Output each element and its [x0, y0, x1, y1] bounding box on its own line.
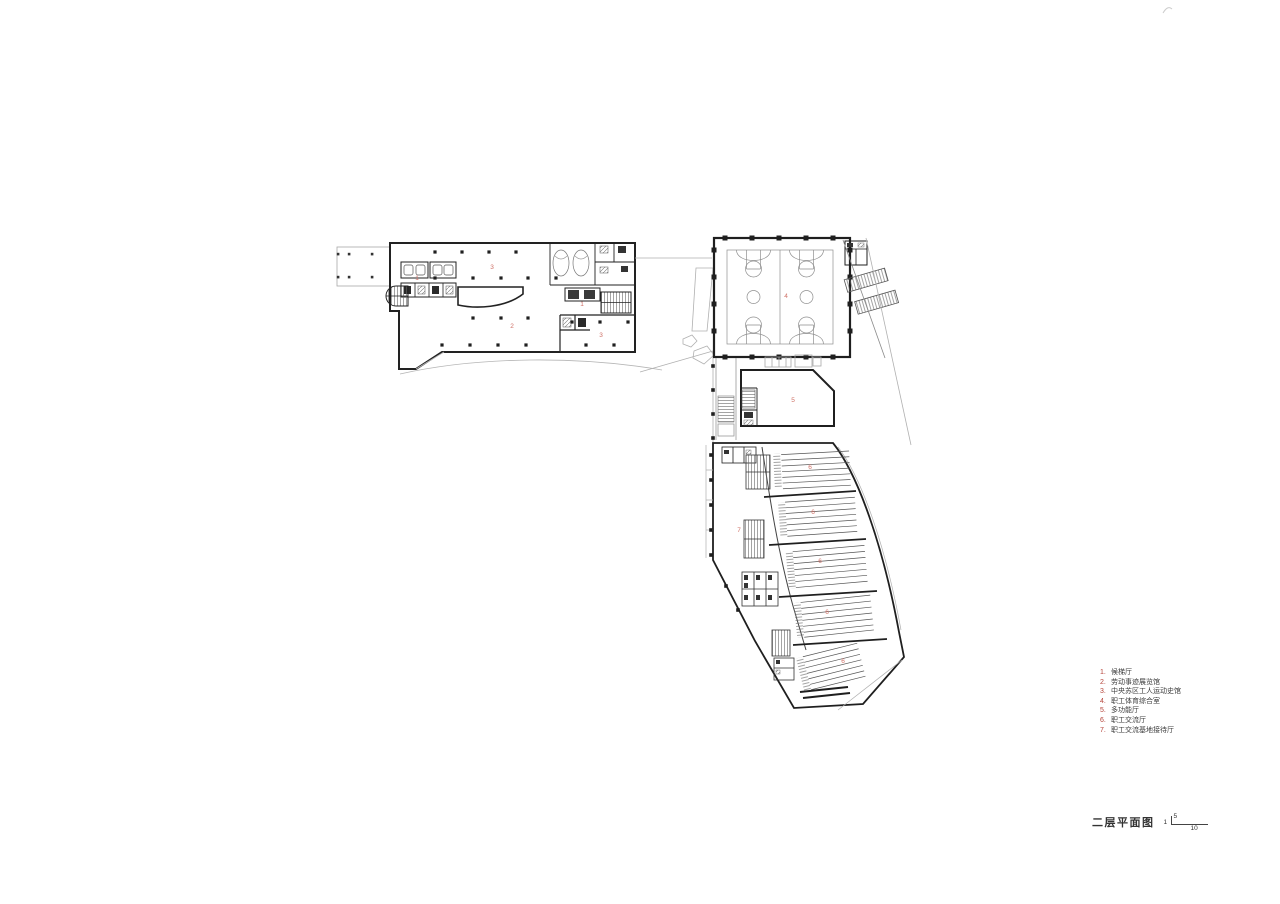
legend-item: 3.中央苏区工人运动史馆	[1100, 687, 1181, 697]
planter-blob-small	[683, 335, 697, 347]
legend-item: 1.候梯厅	[1100, 668, 1181, 678]
multi-function-hall	[711, 355, 834, 440]
west-round-stair	[386, 286, 408, 306]
room-number-label: 3	[599, 333, 603, 340]
scale-lower-number: 10	[1191, 825, 1198, 832]
canopy-columns	[337, 253, 374, 279]
legend-item-number: 5.	[1100, 706, 1108, 716]
legend-item-label: 劳动事迹展览馆	[1111, 678, 1160, 688]
corner-mark	[1163, 8, 1172, 13]
room-number-label: 6	[825, 610, 829, 617]
room-number-label: 1	[580, 302, 584, 309]
toilet-cluster	[742, 572, 778, 606]
room-number-label: 3	[490, 265, 494, 272]
legend-item: 6.职工交流厅	[1100, 716, 1181, 726]
conference-wing	[706, 443, 904, 710]
legend-item-label: 中央苏区工人运动史馆	[1111, 687, 1181, 697]
legend-item: 2.劳动事迹展览馆	[1100, 678, 1181, 688]
legend-item-label: 职工交流厅	[1111, 716, 1146, 726]
legend-item: 4.职工体育综合室	[1100, 697, 1181, 707]
floor-plan-drawing	[0, 0, 1280, 904]
drawing-sheet: 1321345766666 1.候梯厅 2.劳动事迹展览馆 3.中央苏区工人运动…	[0, 0, 1280, 904]
scale-upper-number: 5	[1174, 813, 1178, 820]
scale-line	[1171, 824, 1208, 825]
skylight-trapezoid	[692, 268, 713, 331]
legend-item: 7.职工交流基地接待厅	[1100, 726, 1181, 736]
terrace-connector	[635, 258, 714, 443]
planter-blob-large	[693, 346, 714, 364]
room-number-label: 6	[841, 659, 845, 666]
room-number-label: 2	[510, 324, 514, 331]
site-curves	[400, 352, 662, 374]
room-number-label: 6	[818, 559, 822, 566]
scale-start-number: 1	[1164, 819, 1168, 826]
room-number-label: 6	[811, 510, 815, 517]
legend-item-number: 7.	[1100, 726, 1108, 736]
title-block: 二层平面图 1 5 10	[1092, 814, 1212, 836]
legend-item-label: 职工交流基地接待厅	[1111, 726, 1174, 736]
legend-item-label: 多功能厅	[1111, 706, 1139, 716]
west-corridor	[716, 358, 736, 440]
west-canopy	[337, 247, 390, 286]
room-number-label: 6	[808, 465, 812, 472]
legend-item-number: 4.	[1100, 697, 1108, 707]
room-number-label: 5	[791, 398, 795, 405]
scale-bar: 1 5 10	[1164, 816, 1212, 836]
escalator-bands	[844, 267, 898, 315]
legend-item-label: 职工体育综合室	[1111, 697, 1160, 707]
exhibition-building	[337, 243, 662, 374]
legend-item-number: 6.	[1100, 716, 1108, 726]
legend-item-label: 候梯厅	[1111, 668, 1132, 678]
room-number-label: 4	[784, 294, 788, 301]
legend: 1.候梯厅 2.劳动事迹展览馆 3.中央苏区工人运动史馆 4.职工体育综合室 5…	[1100, 668, 1181, 735]
room-number-label: 7	[737, 528, 741, 535]
stair-mid	[744, 520, 764, 558]
sheet-title: 二层平面图	[1092, 814, 1155, 830]
legend-item-number: 1.	[1100, 668, 1108, 678]
east-stair-wing	[843, 238, 911, 445]
legend-item-number: 2.	[1100, 678, 1108, 688]
legend-item-number: 3.	[1100, 687, 1108, 697]
room-number-label: 1	[415, 276, 419, 283]
stair-north	[746, 455, 770, 489]
legend-item: 5.多功能厅	[1100, 706, 1181, 716]
